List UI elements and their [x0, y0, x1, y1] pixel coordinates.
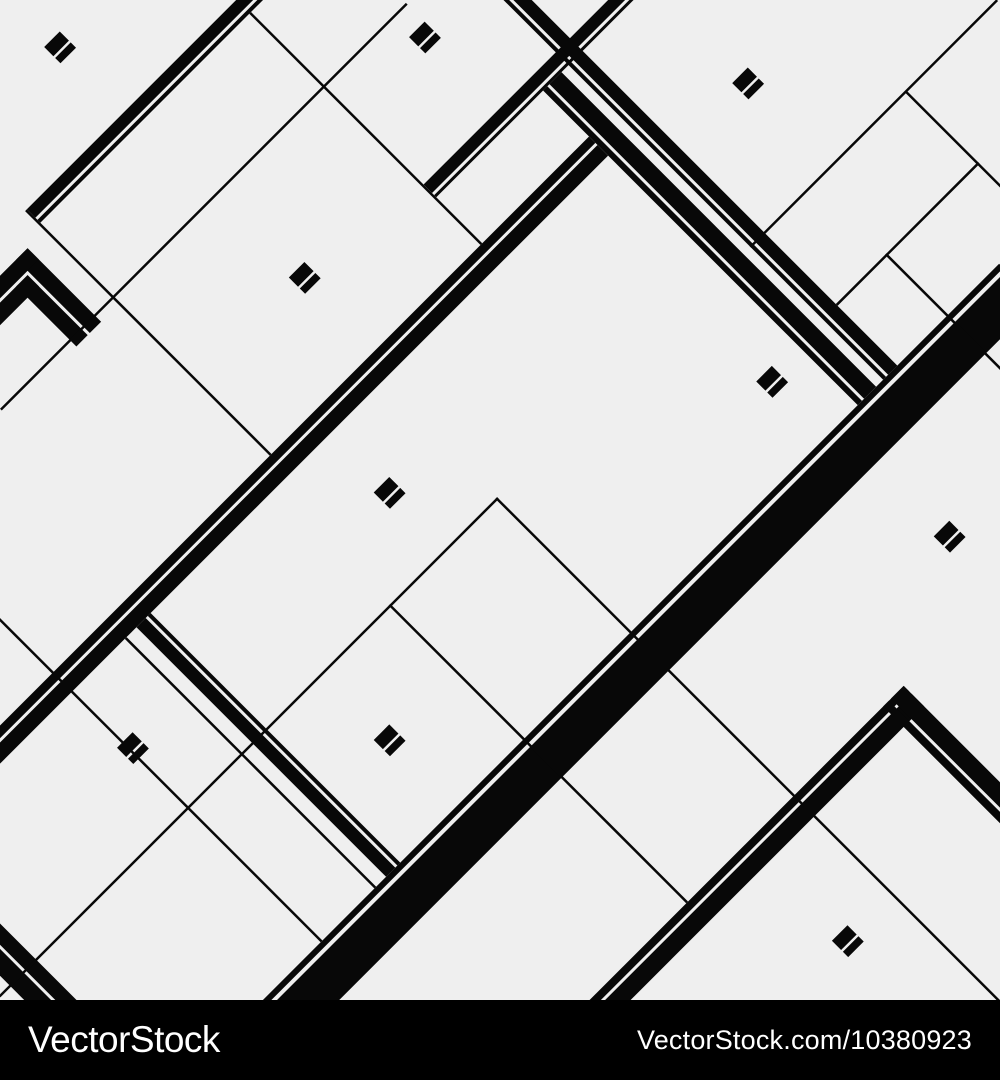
- pattern-canvas: [0, 0, 1000, 1000]
- watermark-footer-bar: VectorStock VectorStock.com/10380923: [0, 1000, 1000, 1080]
- brand-wordmark: VectorStock: [28, 1019, 220, 1061]
- stock-image-preview: VectorStock VectorStock.com/10380923: [0, 0, 1000, 1080]
- image-url-watermark: VectorStock.com/10380923: [637, 1025, 972, 1056]
